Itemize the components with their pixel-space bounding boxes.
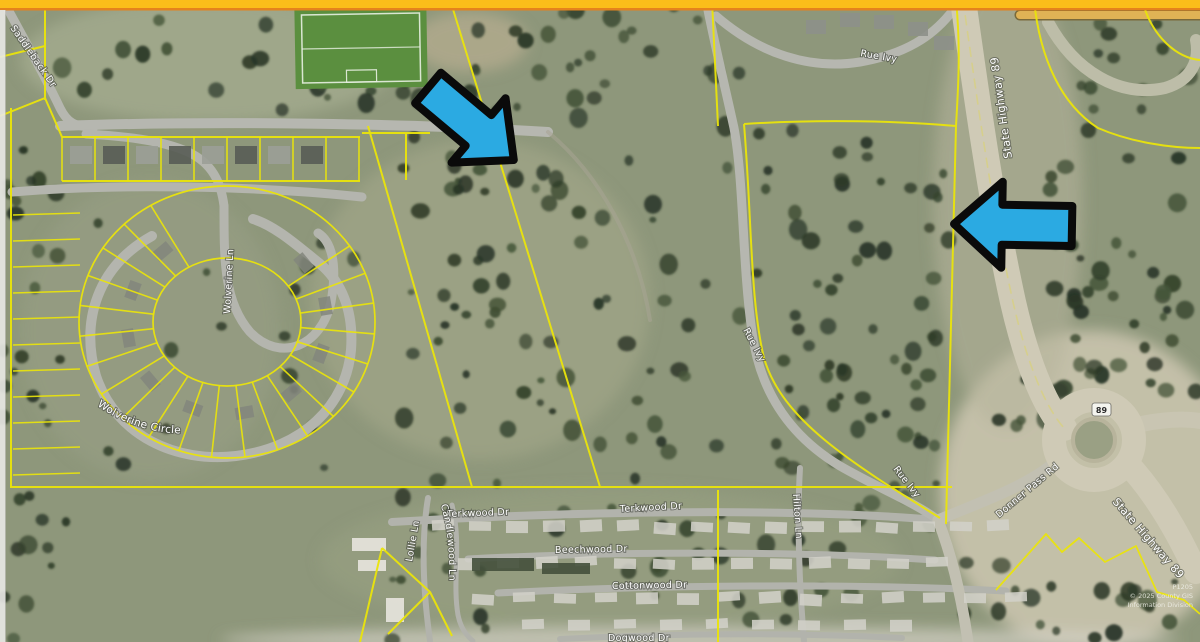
street-label-cottonwood: Cottonwood Dr [612,580,687,592]
highway-89-shield: 89 [1092,403,1111,416]
copyright-line1: P1205 [1173,583,1193,591]
highway-shield-number: 89 [1096,406,1108,415]
aerial-parcel-map: Saddleback Dr Wolverine Ln Wolverine Cir… [0,0,1200,642]
map-edge-strip-left [0,10,5,642]
soccer-field [294,7,427,89]
roundabout-island [1073,419,1115,461]
street-label-beechwood: Beechwood Dr [555,544,628,556]
street-label-dogwood: Dogwood Dr [608,633,670,642]
top-accent-bar [0,0,1200,8]
street-label-terkwood-1: Terkwood Dr [446,507,510,520]
map-canvas: Saddleback Dr Wolverine Ln Wolverine Cir… [0,0,1200,642]
top-accent-bar-edge [0,8,1200,11]
copyright-line3: Information Division [1128,601,1193,609]
copyright-line2: © 2025 County GIS [1130,592,1193,600]
